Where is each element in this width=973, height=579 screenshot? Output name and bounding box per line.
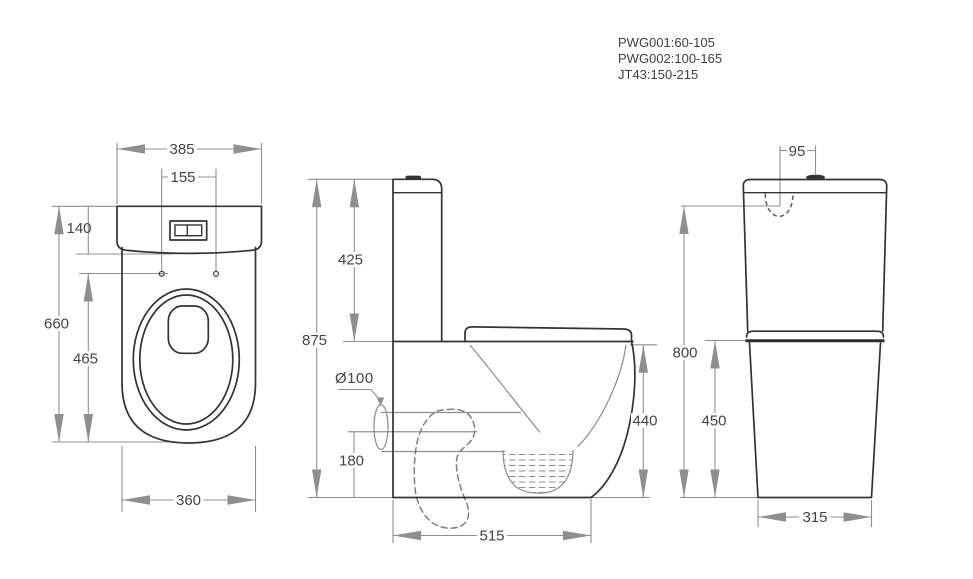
technical-drawing-page: 385 155 140 660 465 360 bbox=[0, 0, 973, 579]
rear-base-width-label: 315 bbox=[802, 509, 827, 526]
rear-dimension-labels: 95 800 450 315 bbox=[670, 143, 831, 526]
side-internal-details bbox=[348, 345, 626, 493]
front-seat-outer-ring bbox=[133, 289, 239, 430]
rear-pan-body bbox=[750, 343, 881, 498]
toilet-dimension-drawing: 385 155 140 660 465 360 bbox=[0, 0, 973, 579]
side-bowl-funnel-back bbox=[578, 345, 627, 447]
side-outlet-height-label: 180 bbox=[339, 453, 364, 470]
side-overall-height-label: 875 bbox=[302, 332, 327, 349]
front-seat-inner-ring bbox=[140, 295, 233, 424]
side-cistern-height-label: 425 bbox=[338, 252, 363, 269]
front-pan-body bbox=[122, 248, 256, 444]
front-hole-spacing-label: 155 bbox=[170, 169, 195, 186]
rear-seat-edge bbox=[747, 331, 884, 337]
rear-inlet-hole-hidden bbox=[765, 194, 793, 217]
rear-toilet-outline bbox=[743, 175, 886, 498]
side-flush-button bbox=[406, 176, 422, 180]
rear-inlet-height-label: 800 bbox=[672, 345, 697, 362]
side-dimension-labels: 425 875 Ø100 180 440 515 bbox=[300, 252, 660, 545]
front-seat-height-label: 465 bbox=[73, 351, 98, 368]
rear-flush-button bbox=[806, 175, 825, 180]
front-cistern bbox=[117, 206, 262, 253]
front-flush-button-inner bbox=[175, 225, 202, 236]
front-dimension-lines bbox=[52, 143, 262, 512]
product-code-annotations: PWG001:60-105 PWG002:100-165 JT43:150-21… bbox=[618, 35, 722, 82]
front-view: 385 155 140 660 465 360 bbox=[42, 141, 262, 512]
side-seat-lid bbox=[465, 327, 632, 342]
side-water-cup bbox=[503, 450, 573, 493]
rear-inlet-offset-label: 95 bbox=[789, 143, 806, 160]
side-outlet-pipe bbox=[374, 405, 388, 450]
rear-cistern bbox=[743, 180, 886, 332]
front-overall-width-label: 385 bbox=[169, 141, 194, 158]
side-water-hatching bbox=[499, 455, 577, 493]
front-overall-height-label: 660 bbox=[44, 316, 69, 333]
side-outlet-diameter-label: Ø100 bbox=[335, 370, 374, 387]
side-view: 425 875 Ø100 180 440 515 bbox=[300, 176, 660, 545]
product-code-line-3: JT43:150-215 bbox=[618, 67, 698, 82]
rear-view: 95 800 450 315 bbox=[670, 143, 887, 527]
side-depth-label: 515 bbox=[479, 528, 504, 545]
rear-pan-height-label: 450 bbox=[701, 413, 726, 430]
side-bowl-funnel-front bbox=[470, 345, 540, 433]
side-toilet-outline bbox=[393, 176, 635, 498]
side-cistern-and-back bbox=[393, 179, 442, 497]
side-trap-hidden-outline bbox=[414, 409, 475, 528]
side-rim-height-label: 440 bbox=[632, 413, 657, 430]
rear-dimension-lines bbox=[680, 146, 872, 528]
front-toilet-outline bbox=[117, 206, 262, 443]
front-seat-hole-right bbox=[214, 271, 219, 276]
front-bowl-opening bbox=[168, 306, 208, 353]
front-base-width-label: 360 bbox=[176, 492, 201, 509]
side-bowl-back-profile bbox=[591, 342, 635, 498]
product-code-line-2: PWG002:100-165 bbox=[618, 51, 722, 66]
product-code-line-1: PWG001:60-105 bbox=[618, 35, 715, 50]
side-outlet-leader-line bbox=[338, 390, 379, 399]
front-lid-height-label: 140 bbox=[66, 220, 91, 237]
